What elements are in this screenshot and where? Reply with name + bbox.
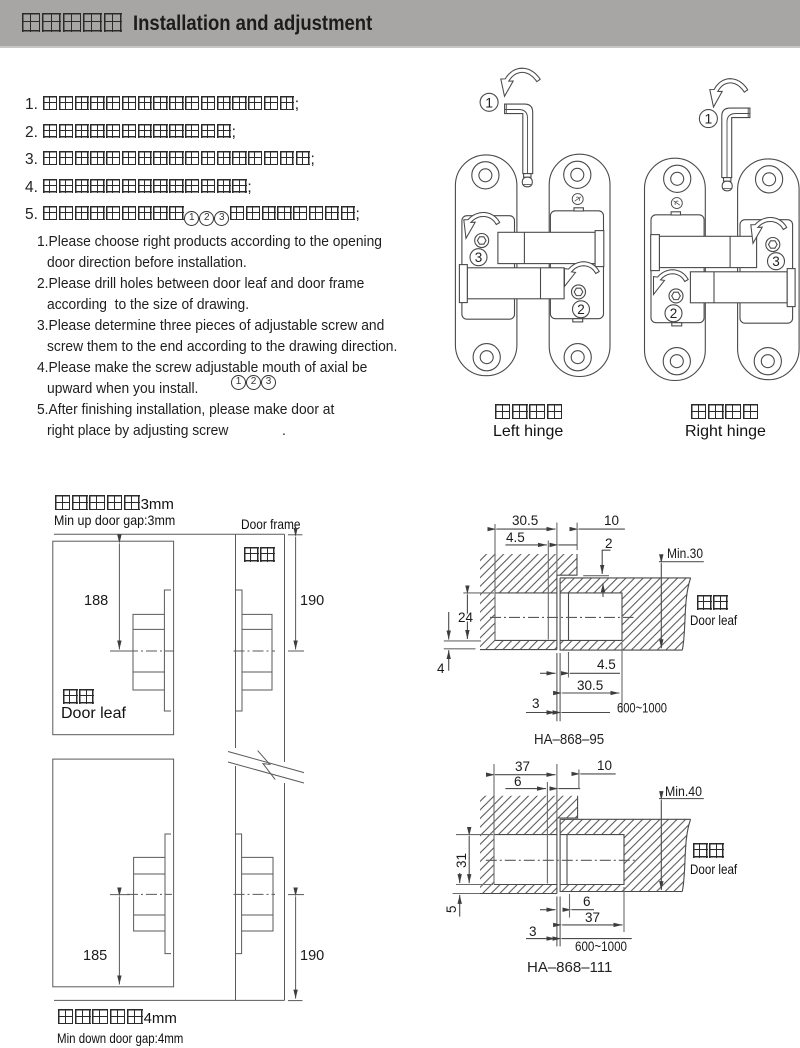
svg-text:2: 2 (670, 306, 678, 321)
svg-text:31: 31 (454, 853, 469, 868)
svg-text:3: 3 (772, 254, 780, 269)
svg-text:188: 188 (84, 593, 108, 609)
svg-text:37: 37 (515, 759, 530, 774)
svg-text:37: 37 (585, 910, 600, 925)
svg-text:10: 10 (604, 513, 619, 528)
svg-text:30.5: 30.5 (577, 678, 603, 693)
svg-text:30.5: 30.5 (512, 513, 538, 528)
svg-text:Min.30: Min.30 (667, 546, 703, 561)
svg-text:4: 4 (437, 661, 445, 676)
svg-text:10: 10 (597, 758, 612, 773)
svg-text:2: 2 (577, 302, 585, 317)
svg-text:1: 1 (705, 111, 713, 127)
svg-text:3: 3 (532, 696, 540, 711)
svg-text:4.5: 4.5 (506, 530, 525, 545)
svg-text:3: 3 (475, 250, 483, 265)
svg-text:24: 24 (458, 610, 474, 625)
svg-text:600~1000: 600~1000 (617, 701, 667, 716)
svg-text:1: 1 (485, 94, 493, 110)
svg-text:2: 2 (605, 536, 613, 551)
svg-text:190: 190 (300, 593, 324, 609)
svg-text:6: 6 (514, 774, 522, 789)
svg-text:5: 5 (444, 905, 459, 913)
svg-text:190: 190 (300, 948, 324, 964)
svg-text:6: 6 (583, 894, 591, 909)
svg-text:600~1000: 600~1000 (575, 939, 627, 954)
svg-text:4.5: 4.5 (597, 657, 616, 672)
svg-text:185: 185 (83, 948, 107, 964)
svg-text:3: 3 (529, 924, 537, 939)
svg-text:Min.40: Min.40 (665, 784, 702, 799)
